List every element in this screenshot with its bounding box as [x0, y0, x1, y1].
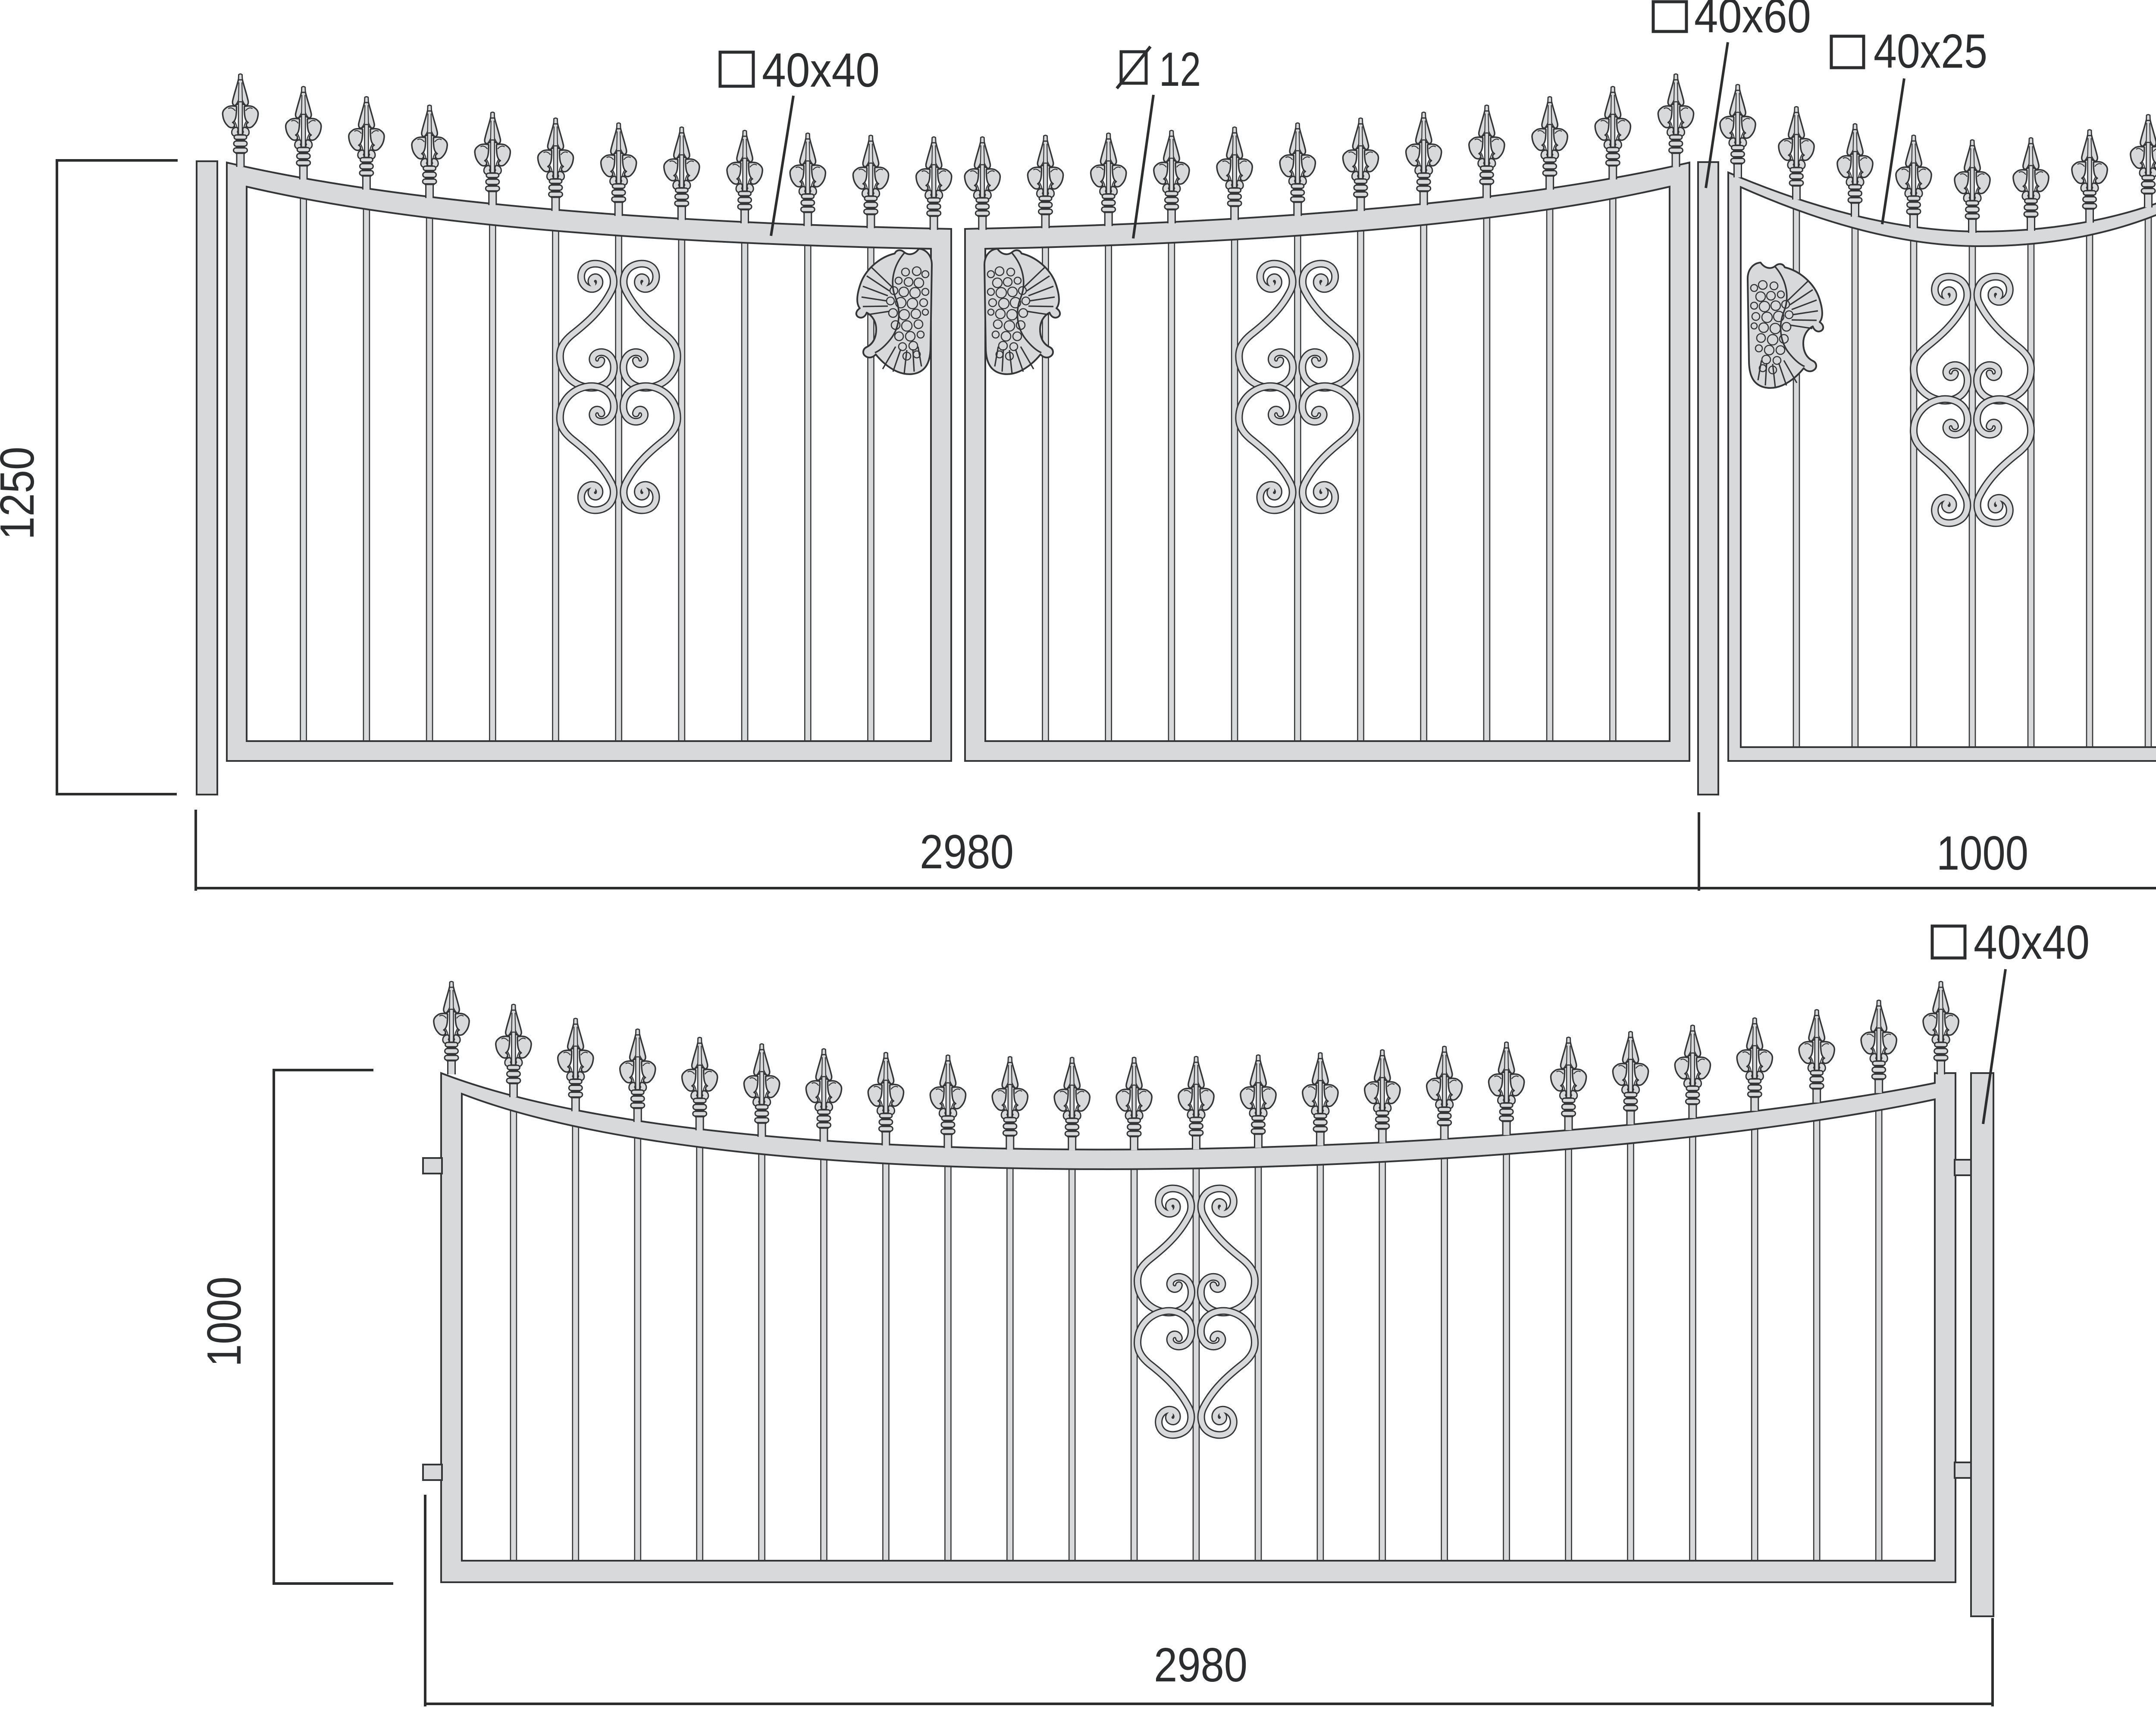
svg-text:2980: 2980 — [1154, 1638, 1247, 1692]
svg-text:40x60: 40x60 — [1694, 0, 1811, 43]
svg-text:2980: 2980 — [920, 825, 1014, 879]
svg-text:1000: 1000 — [1937, 826, 2028, 880]
svg-text:1250: 1250 — [0, 447, 44, 540]
svg-text:1000: 1000 — [197, 1277, 251, 1367]
svg-text:40x40: 40x40 — [1974, 916, 2090, 969]
svg-text:12: 12 — [1159, 43, 1201, 96]
svg-text:40x25: 40x25 — [1874, 25, 1987, 78]
svg-text:40x40: 40x40 — [762, 44, 880, 97]
